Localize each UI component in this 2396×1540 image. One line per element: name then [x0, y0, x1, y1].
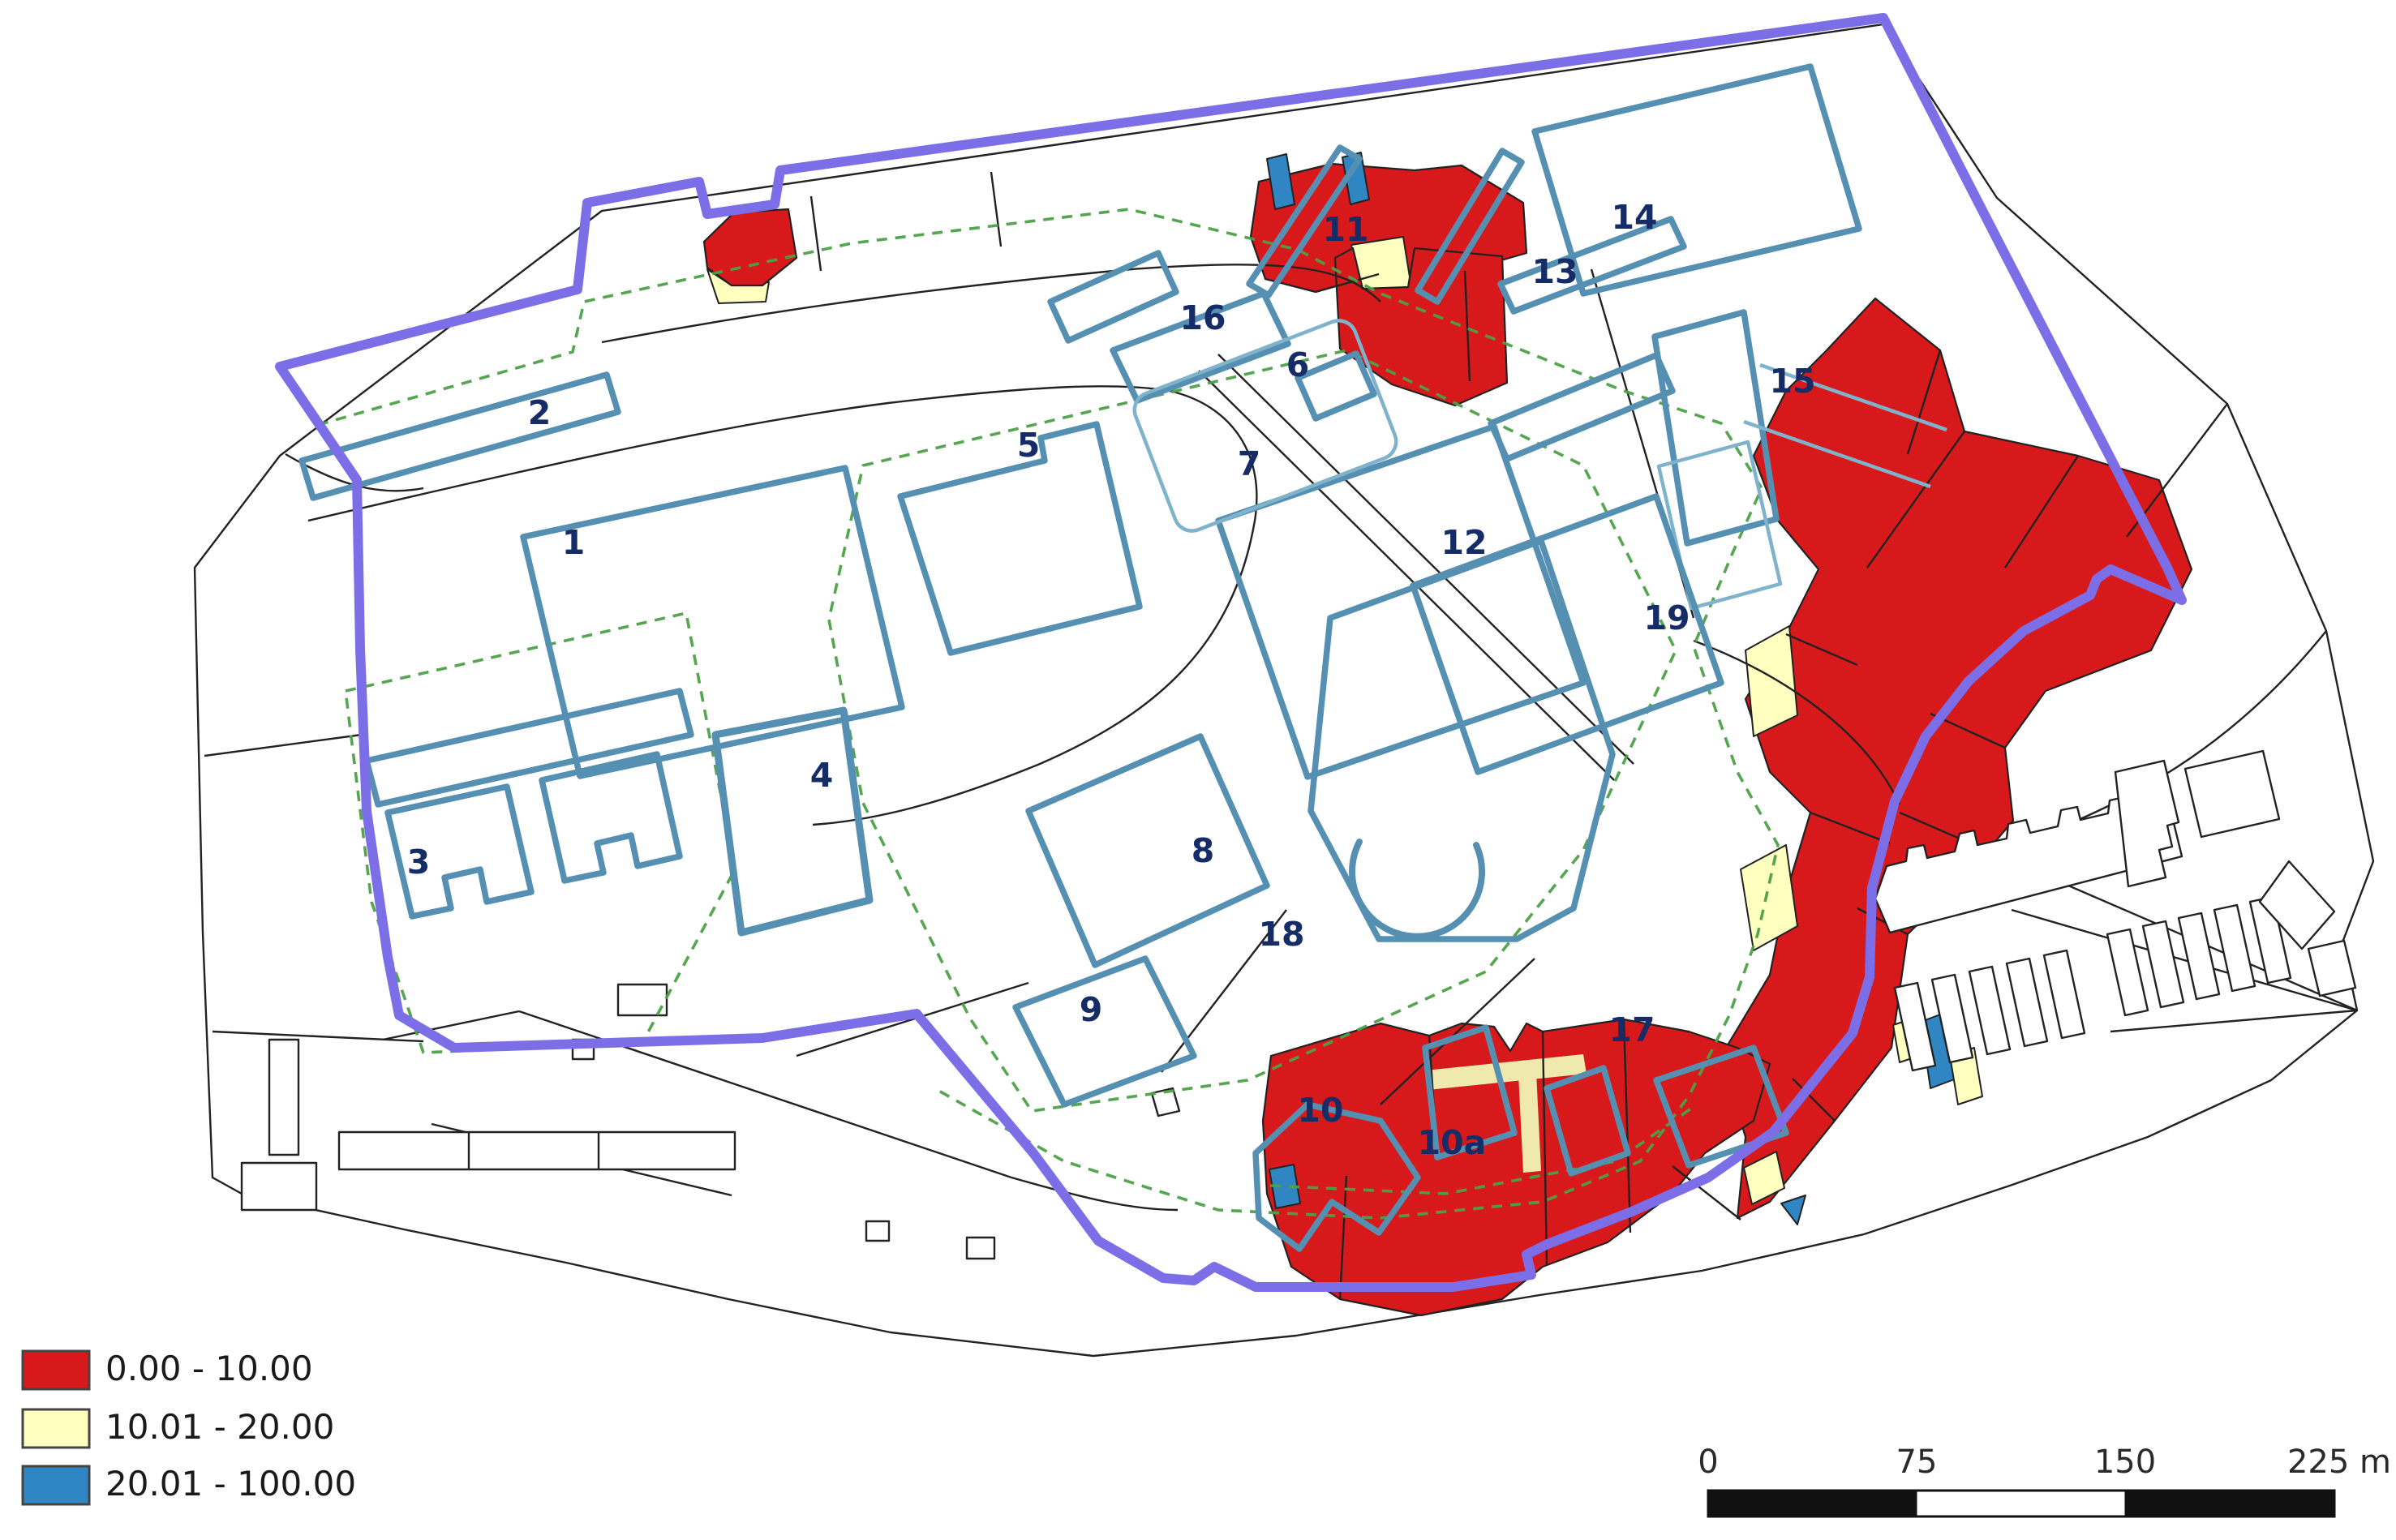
building-label-19: 19 [1643, 598, 1690, 637]
building-label-10a: 10a [1418, 1123, 1487, 1162]
legend-swatch-blue [23, 1466, 89, 1504]
building-label-1: 1 [562, 523, 586, 562]
building-label-3: 3 [407, 843, 431, 882]
building-13b [1491, 355, 1672, 459]
scale-bar: 0 75 150 225 m [1698, 1443, 2391, 1516]
building-label-16: 16 [1179, 298, 1226, 337]
scale-tick-0: 0 [1698, 1443, 1718, 1481]
scale-tick-75: 75 [1896, 1443, 1938, 1481]
building-8 [1028, 736, 1267, 965]
legend-label-yellow: 10.01 - 20.00 [105, 1407, 334, 1447]
building-label-17: 17 [1608, 1010, 1655, 1049]
building-14 [1535, 66, 1859, 294]
building-label-4: 4 [810, 756, 834, 795]
scale-tick-150: 150 [2094, 1443, 2156, 1481]
parcel-yellow [1745, 626, 1797, 736]
building-labels: 1234567891010a111213141516171819 [407, 198, 1816, 1162]
building-label-10: 10 [1297, 1091, 1343, 1130]
scale-bar-segment [1708, 1491, 1917, 1516]
building-label-12: 12 [1441, 523, 1487, 562]
building-16b [1050, 253, 1176, 341]
building-3-east [542, 754, 680, 881]
building-label-13: 13 [1531, 252, 1578, 291]
building-label-9: 9 [1080, 990, 1103, 1029]
building-label-8: 8 [1192, 831, 1215, 870]
legend-swatch-yellow [23, 1409, 89, 1448]
building-label-2: 2 [528, 393, 552, 432]
legend-label-blue: 20.01 - 100.00 [105, 1464, 356, 1504]
building-label-5: 5 [1017, 426, 1041, 465]
parcel-blue [1781, 1195, 1806, 1225]
block-casing [1129, 315, 1401, 536]
scale-tick-225m: 225 m [2287, 1443, 2391, 1481]
legend: 0.00 - 10.00 10.01 - 20.00 20.01 - 100.0… [23, 1349, 356, 1504]
building-9 [1016, 959, 1194, 1105]
building-3-bar [367, 691, 691, 804]
legend-swatch-red [23, 1351, 89, 1389]
building-label-6: 6 [1286, 345, 1310, 384]
building-label-7: 7 [1238, 444, 1261, 483]
legend-label-red: 0.00 - 10.00 [105, 1349, 313, 1388]
building-horseshoe [1352, 842, 1482, 937]
map-canvas: 1234567891010a111213141516171819 0.00 - … [0, 0, 2396, 1540]
building-label-11: 11 [1322, 210, 1368, 249]
building-label-15: 15 [1769, 362, 1815, 401]
parcel-red [704, 209, 797, 285]
scale-bar-segment [2125, 1491, 2334, 1516]
building-7 [1218, 427, 1583, 777]
map-figure: 1234567891010a111213141516171819 0.00 - … [0, 0, 2396, 1540]
building-label-18: 18 [1258, 915, 1304, 954]
building-2 [302, 375, 618, 498]
building-label-14: 14 [1611, 198, 1657, 237]
